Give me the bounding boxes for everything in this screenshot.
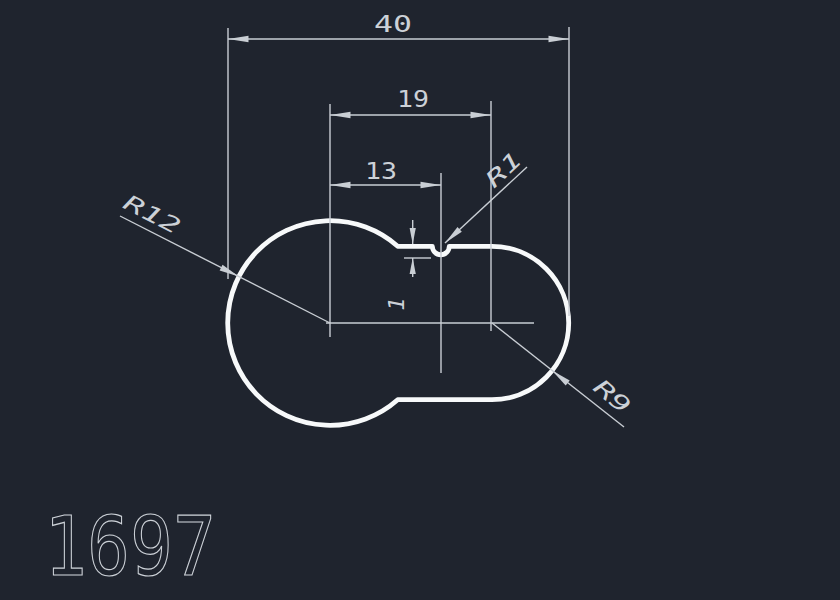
dim-center-distance[interactable]: 19 — [330, 86, 491, 338]
dim-40-arrow-right — [549, 36, 570, 42]
radius-dim-r1[interactable]: R1 — [445, 147, 527, 243]
dim-1-text[interactable]: 1 — [384, 297, 409, 310]
dim-40-arrow-left — [228, 36, 249, 42]
model-space[interactable]: 40 19 13 1 R12 R1 — [0, 0, 840, 600]
dim-notch-depth[interactable]: 1 — [384, 220, 431, 311]
dim-13-arrow-right — [421, 182, 442, 188]
r12-arrow — [220, 265, 239, 277]
radius-dim-r9[interactable]: R9 — [492, 323, 636, 427]
dim-notch-offset[interactable]: 13 — [330, 158, 441, 373]
dim-19-arrow-right — [471, 112, 492, 118]
drawing-number[interactable]: 1697 — [44, 499, 216, 594]
dim-19-text[interactable]: 19 — [397, 86, 429, 112]
radius-dim-r12[interactable]: R12 — [120, 190, 330, 323]
dim-40-text[interactable]: 40 — [374, 11, 412, 37]
dim-19-arrow-left — [330, 112, 351, 118]
dim-13-arrow-left — [330, 182, 351, 188]
r9-text[interactable]: R9 — [589, 374, 636, 419]
dim-1-arrow-up — [410, 258, 416, 274]
dim-13-text[interactable]: 13 — [365, 158, 397, 184]
r1-arrow — [445, 227, 462, 243]
r9-arrow — [552, 371, 570, 386]
r1-text[interactable]: R1 — [481, 147, 527, 193]
dim-1-arrow-down — [410, 228, 416, 244]
